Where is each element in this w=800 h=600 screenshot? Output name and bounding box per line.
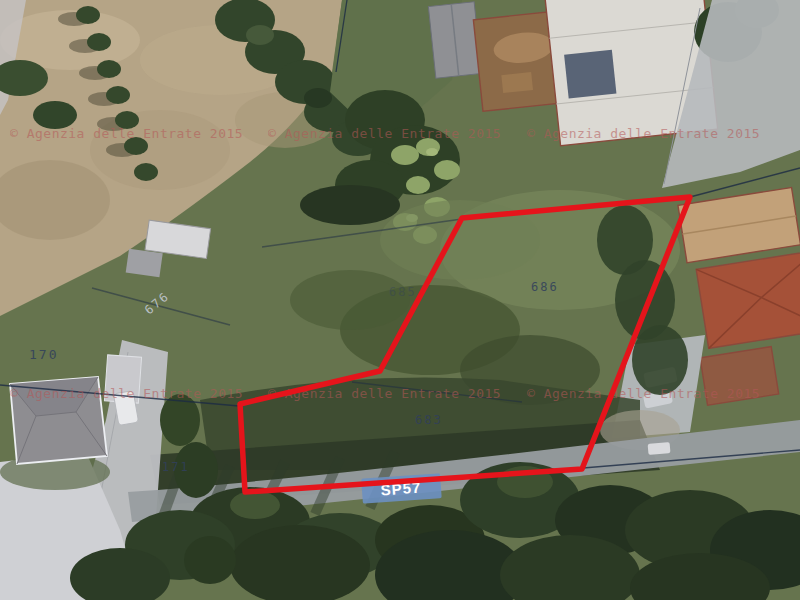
parcel-label-170: 170 bbox=[29, 347, 58, 362]
map-viewport[interactable]: 686 683 685 170 171 676 SP57 © Agenzia d… bbox=[0, 0, 800, 600]
watermark: © Agenzia delle Entrate 2015 bbox=[10, 386, 243, 401]
parcel-label-171: 171 bbox=[162, 460, 190, 474]
satellite-imagery bbox=[0, 0, 800, 600]
car-on-road bbox=[648, 442, 671, 455]
watermark: © Agenzia delle Entrate 2015 bbox=[10, 126, 243, 141]
parcel-label-685: 685 bbox=[389, 285, 417, 299]
watermark: © Agenzia delle Entrate 2015 bbox=[527, 386, 760, 401]
watermark: © Agenzia delle Entrate 2015 bbox=[527, 126, 760, 141]
watermark: © Agenzia delle Entrate 2015 bbox=[268, 126, 501, 141]
parcel-label-686: 686 bbox=[531, 280, 559, 294]
building-gray-top bbox=[428, 2, 481, 78]
parcel-label-683: 683 bbox=[415, 413, 443, 427]
